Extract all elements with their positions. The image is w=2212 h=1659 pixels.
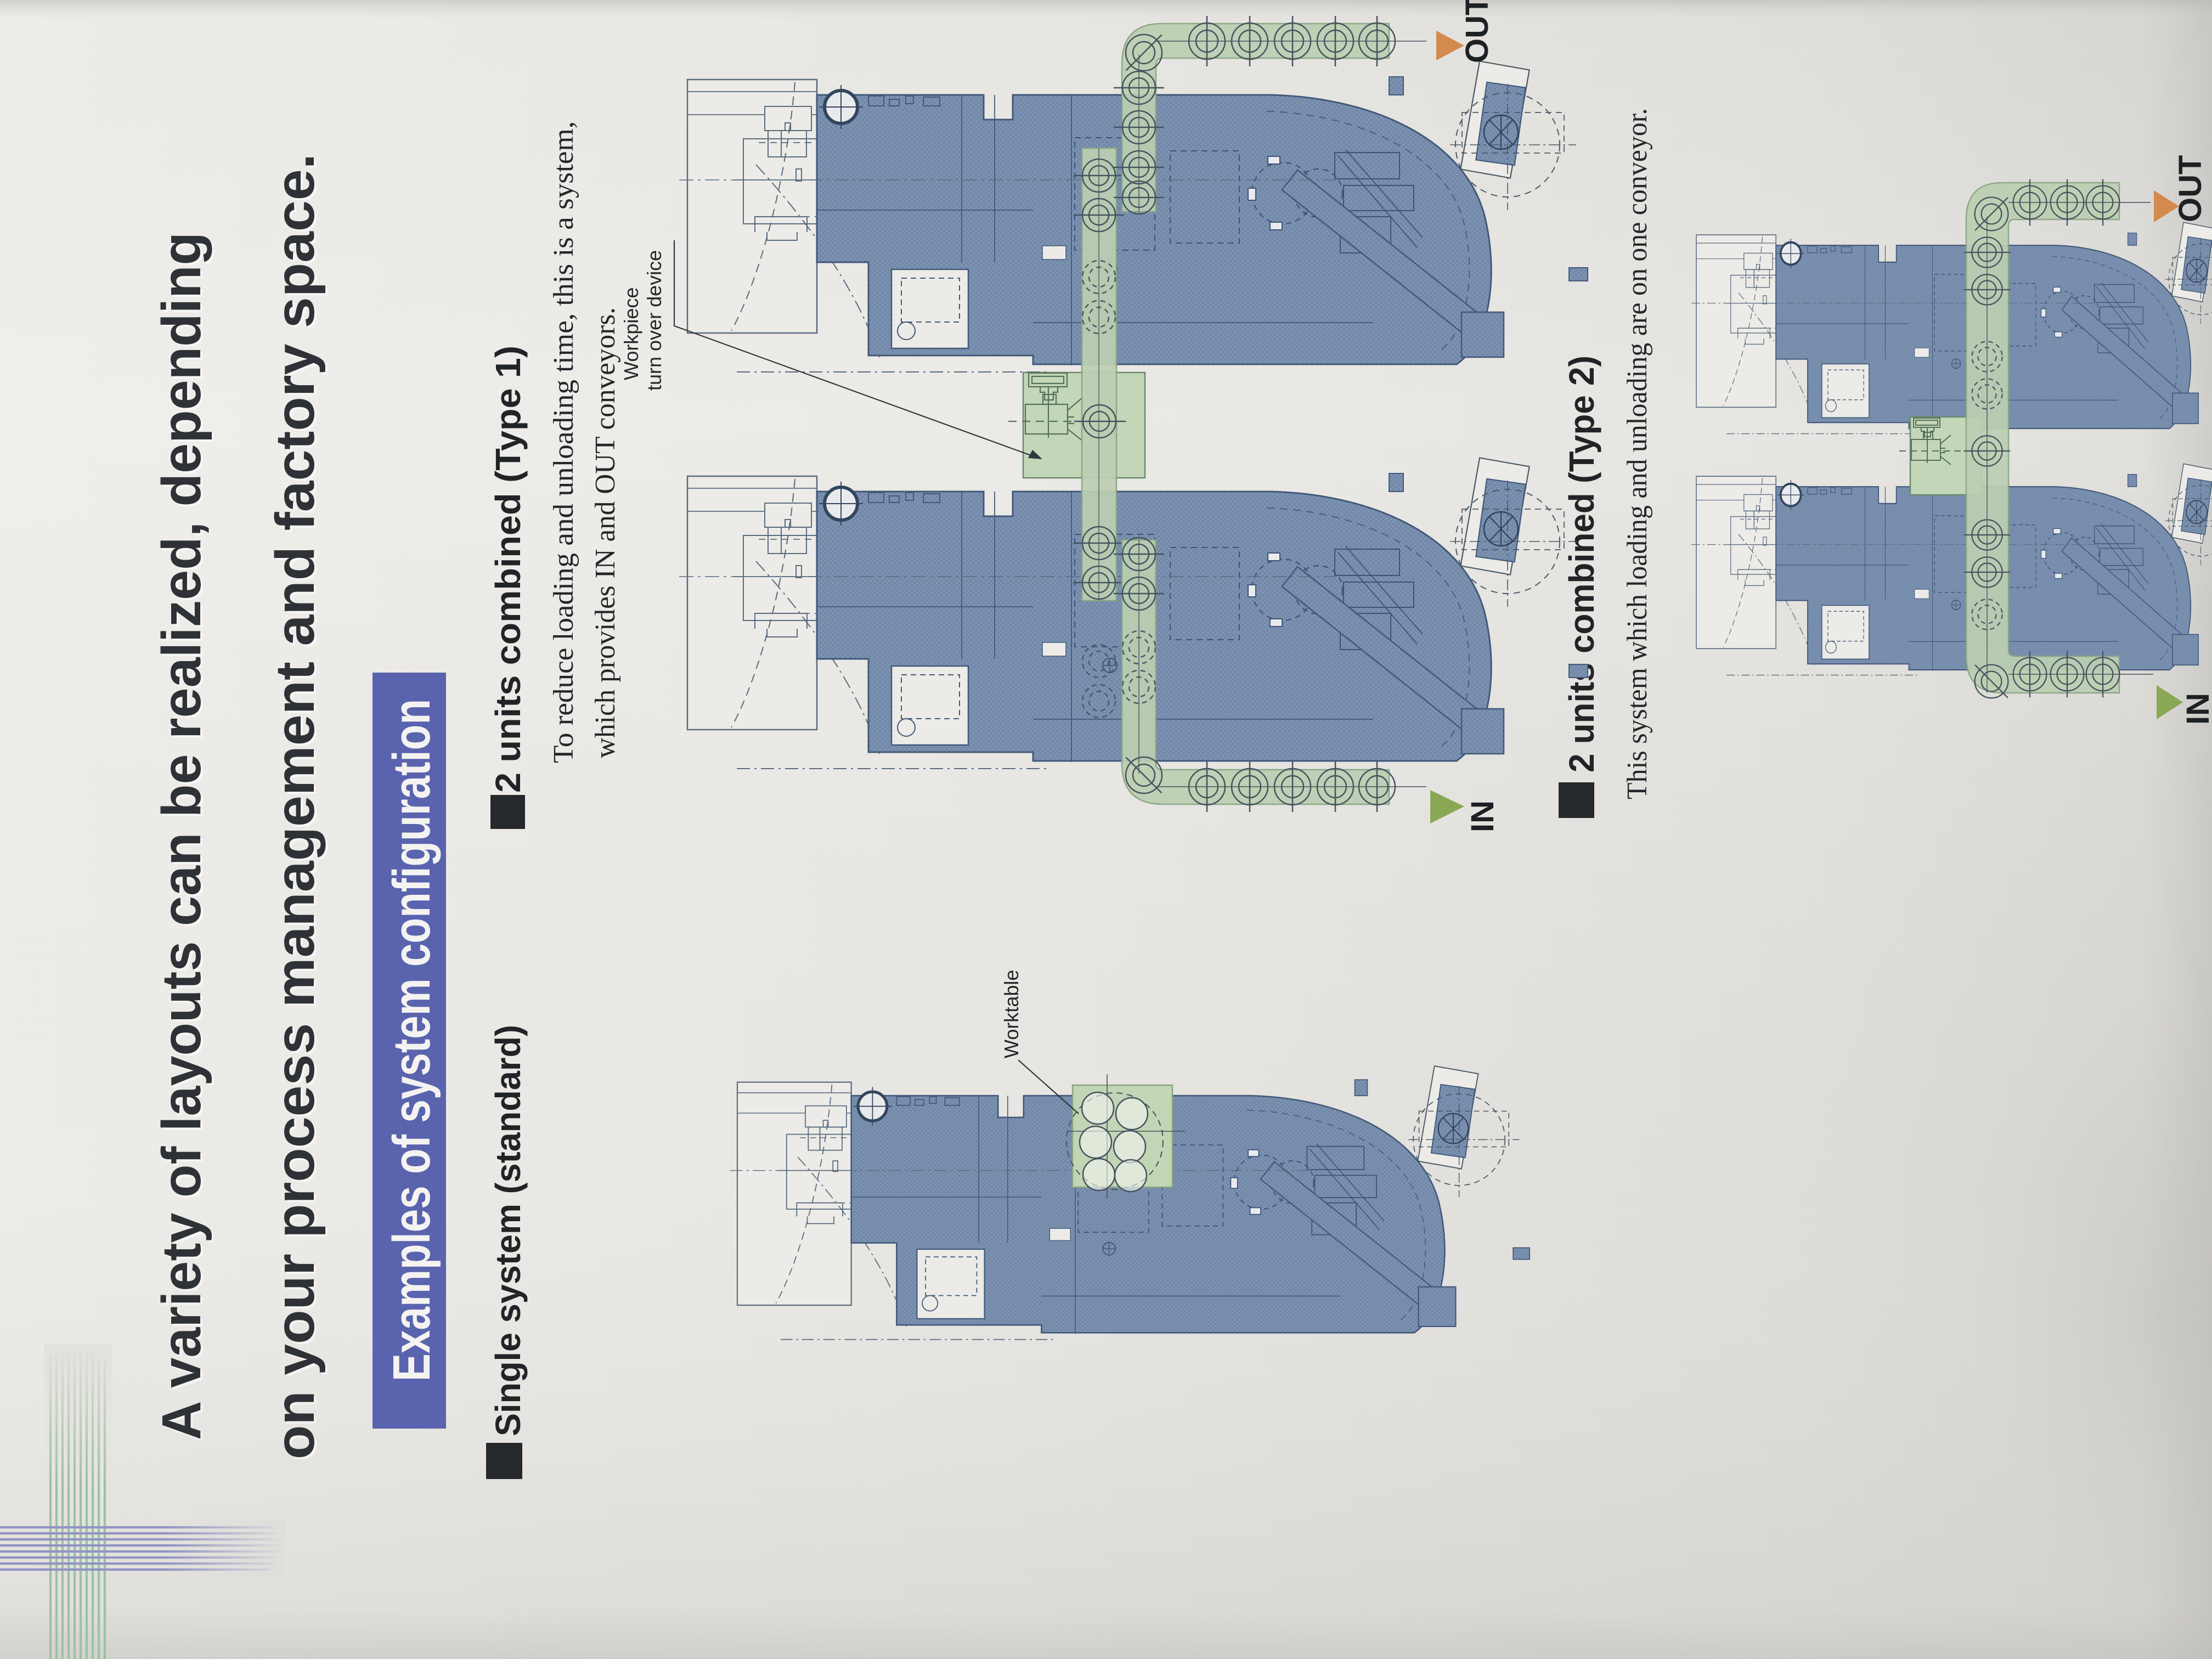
svg-text:Single system (standard): Single system (standard) (488, 1025, 528, 1436)
svg-text:Examples of system configurati: Examples of system configuration (382, 699, 441, 1381)
svg-text:This system which loading and: This system which loading and unloading … (1622, 108, 1653, 799)
svg-text:Workpiece: Workpiece (620, 287, 642, 380)
svg-text:on your process management and: on your process management and factory s… (264, 154, 326, 1459)
svg-text:which provides IN and OUT conv: which provides IN and OUT conveyors. (590, 307, 621, 758)
svg-text:OUT: OUT (1459, 0, 1495, 63)
svg-text:A variety of layouts can be re: A variety of layouts can be realized, de… (151, 232, 212, 1440)
svg-text:Worktable: Worktable (1000, 970, 1023, 1058)
svg-text:IN: IN (1465, 800, 1500, 832)
svg-text:IN: IN (2180, 693, 2212, 725)
svg-text:2 units combined (Type 1): 2 units combined (Type 1) (488, 346, 528, 793)
svg-text:turn over device: turn over device (643, 250, 665, 391)
svg-text:To reduce loading and unloadin: To reduce loading and unloading time, th… (548, 121, 579, 763)
svg-text:2 units combined (Type 2): 2 units combined (Type 2) (1562, 356, 1601, 772)
svg-text:OUT: OUT (2172, 155, 2208, 222)
